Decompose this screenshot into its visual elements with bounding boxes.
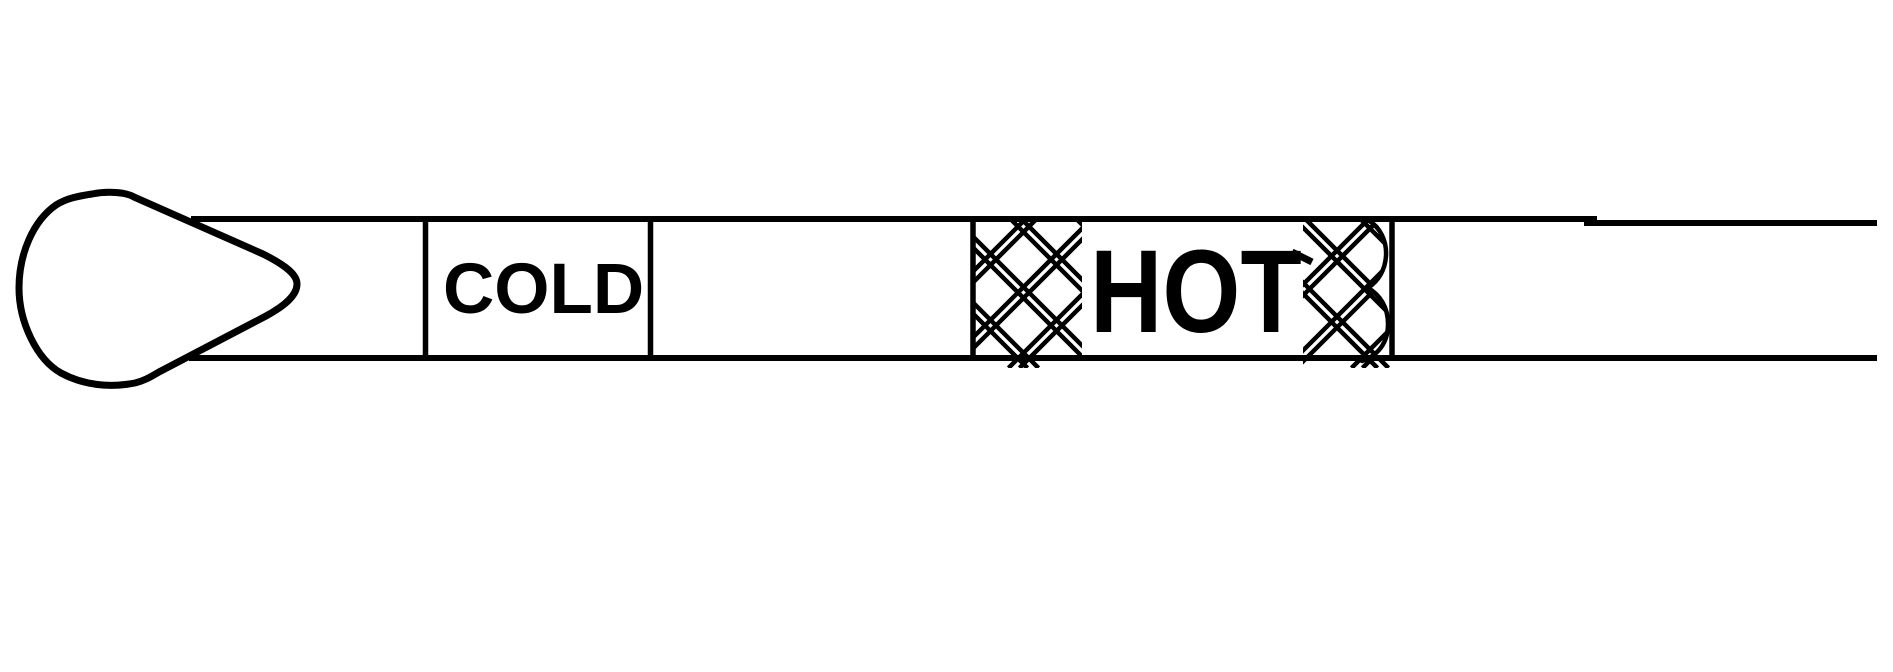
cold-range-label: COLD [443,250,644,329]
dipstick-drawing: COLD HOT [0,0,1893,672]
hot-range-label: HOT [1090,226,1302,357]
dipstick-diagram: COLD HOT [0,0,1893,672]
